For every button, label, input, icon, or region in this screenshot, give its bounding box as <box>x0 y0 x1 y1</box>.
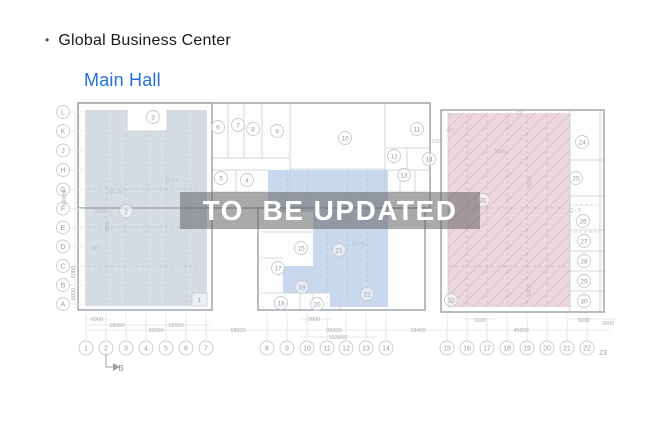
row-axis-label: B <box>61 282 66 289</box>
room-number: 22 <box>363 291 371 298</box>
room-number: 7 <box>236 122 240 129</box>
dimension-text: 18000 <box>230 328 245 334</box>
room-number: 5 <box>219 175 223 182</box>
room-number: 21 <box>335 247 343 254</box>
room-number: 30 <box>580 298 588 305</box>
room-number: 25 <box>572 175 580 182</box>
col-axis-label: 21 <box>563 346 571 353</box>
annotation-text: 2000 <box>94 209 105 215</box>
row-axis-label: C <box>60 263 65 270</box>
col-axis-label: 22 <box>583 346 591 353</box>
dimension-text: 6000 <box>71 288 77 300</box>
dimension-text: 2000 <box>308 317 320 323</box>
col-axis-label: 4 <box>144 346 148 353</box>
room-number: 29 <box>580 278 588 285</box>
annotation-text: Q + 3 <box>166 178 179 184</box>
row-axis-label: H <box>60 167 65 174</box>
room-number: 26 <box>579 218 587 225</box>
col-axis-label: 3 <box>124 346 128 353</box>
annotation-text: Q + 3 <box>352 241 365 247</box>
room-number: 11 <box>414 126 421 133</box>
room-number: 20 <box>313 301 321 308</box>
annotation-text: 6000 <box>527 284 533 295</box>
room-number: 3 <box>151 114 155 121</box>
room-number: 15 <box>297 245 305 252</box>
col-axis-label: 2 <box>104 346 108 353</box>
col-axis-label: 1 <box>84 346 88 353</box>
col-axis-label: 10 <box>303 346 311 353</box>
room-number: 13 <box>400 172 408 179</box>
dimension-text: 60000 <box>62 190 68 205</box>
annotation-text: 1000 <box>431 139 442 145</box>
row-axis-label: F <box>61 206 65 213</box>
row-axis-label: A <box>61 301 66 308</box>
dimension-text: 36000 <box>326 328 341 334</box>
annotation-text: 45° <box>91 246 99 252</box>
room-number: 28 <box>580 258 588 265</box>
room-number: 18 <box>277 300 285 307</box>
dimension-text: 18000 <box>109 323 124 329</box>
dimension-text: 18000 <box>168 323 183 329</box>
annotation-text: 6000 <box>527 176 533 187</box>
dimension-text: 45000 <box>513 328 528 334</box>
annotation-text: Q + 3 <box>109 190 122 196</box>
annotation-text: Q - 3 <box>569 208 580 214</box>
dimension-text: 6000 <box>71 266 77 278</box>
section-marker-label: B <box>118 364 123 373</box>
col-axis-label: 8 <box>265 346 269 353</box>
dimension-text: 3000 <box>602 321 614 327</box>
dimension-text: 6000 <box>91 317 103 323</box>
room-number: 2 <box>124 208 128 215</box>
col-axis-label-23: 23 <box>599 350 607 357</box>
col-axis-label: 6 <box>184 346 188 353</box>
col-axis-label: 11 <box>323 346 330 353</box>
col-axis-label: 7 <box>204 346 208 353</box>
room-number: 4 <box>245 177 249 184</box>
room-number: 8 <box>251 126 255 133</box>
room-number: 12 <box>390 153 398 160</box>
col-axis-label: 17 <box>483 346 491 353</box>
col-axis-label: 13 <box>362 346 370 353</box>
row-axis-label: D <box>60 244 65 251</box>
row-axis-label: K <box>61 128 66 135</box>
annotation-text: 1800 <box>494 149 505 155</box>
room-number: 9 <box>275 128 279 135</box>
col-axis-label: 19 <box>523 346 531 353</box>
col-axis-label: 15 <box>443 346 451 353</box>
room-number: 24 <box>578 139 586 146</box>
dimension-text: 36000 <box>148 328 163 334</box>
room-number: 6 <box>216 124 220 131</box>
col-axis-label: 20 <box>543 346 551 353</box>
room-number: 19 <box>298 284 306 291</box>
room-box-number: 1 <box>198 297 202 304</box>
dimension-text: 1000 <box>474 318 486 324</box>
room-number: 31 <box>479 197 487 204</box>
col-axis-label: 16 <box>463 346 471 353</box>
room-number: 10 <box>341 135 349 142</box>
watermark-banner: TO BE UPDATED <box>180 192 480 229</box>
col-axis-label: 9 <box>285 346 289 353</box>
annotation-text: 5000 <box>105 220 111 231</box>
annotation-text: 23 <box>516 111 522 117</box>
dimension-text: 153660 <box>329 335 347 341</box>
dimension-text: 19400 <box>410 328 425 334</box>
dimension-text: 6000 <box>578 318 590 324</box>
col-axis-label: 5 <box>164 346 168 353</box>
room-number: 17 <box>274 265 282 272</box>
room-number: 32 <box>447 297 455 304</box>
col-axis-label: 14 <box>382 346 390 353</box>
row-axis-label: E <box>61 225 66 232</box>
room-number: 14 <box>425 156 433 163</box>
row-axis-label: L <box>61 109 65 116</box>
col-axis-label: 18 <box>503 346 511 353</box>
room-number: 27 <box>580 238 588 245</box>
row-axis-label: J <box>61 148 65 155</box>
col-axis-label: 12 <box>342 346 350 353</box>
annotation-text: 45° <box>446 128 454 134</box>
